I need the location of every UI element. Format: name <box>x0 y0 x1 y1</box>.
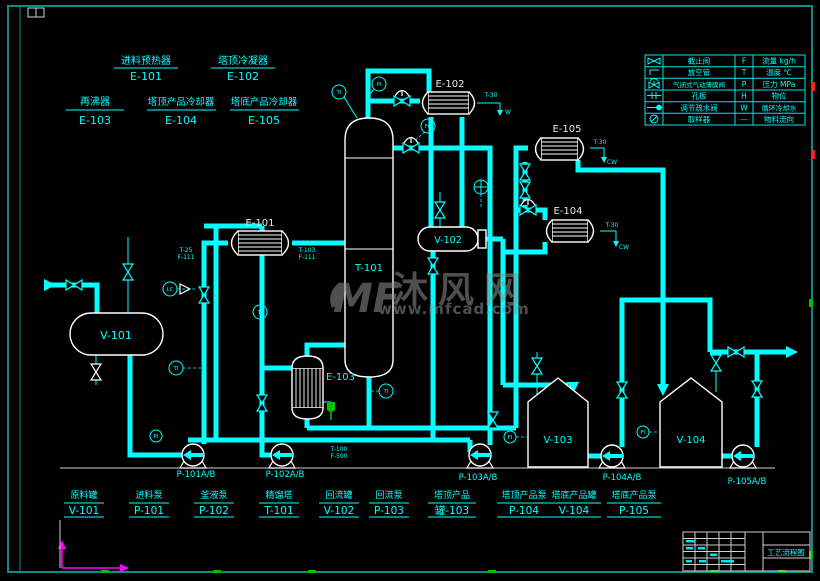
instrument-ti: TI <box>257 310 263 316</box>
bottom-legend-item: 原料罐 V-101 <box>64 489 104 517</box>
pneumatic-valve-icon <box>649 79 659 89</box>
pump-p102-tag: P-102A/B <box>266 470 305 480</box>
vent-pipe-icon <box>650 70 659 75</box>
bottom-legend-item: 进料泵 P-101 <box>129 489 169 517</box>
symbol-code: H <box>741 92 747 101</box>
reflux-valve-actuator-icon <box>404 138 418 144</box>
exchanger-e104-tag: E-104 <box>553 206 582 217</box>
feed-valve-icon <box>66 280 82 290</box>
v104-inlet-arrow-icon <box>657 384 669 396</box>
item-name: 塔底产品罐 <box>551 489 596 501</box>
cw-temp-label: T-30 <box>605 222 619 229</box>
e105-drain-valve1-icon <box>520 164 530 180</box>
stream-label: T-103 <box>298 247 316 254</box>
symbol-meaning: 温度 ℃ <box>766 67 792 77</box>
legend-tag: E-103 <box>79 114 111 127</box>
orifice-plate-icon <box>647 92 661 99</box>
legend-name: 再沸器 <box>80 95 110 108</box>
symbol-code: F <box>742 57 746 66</box>
item-name: 回流泵 <box>375 489 402 501</box>
exchanger-e102-tag: E-102 <box>435 79 464 90</box>
symbol-name: 取样器 <box>688 114 711 124</box>
stream-label: F-500 <box>330 453 347 460</box>
legend-tag: E-104 <box>165 114 197 127</box>
equipment-legend: 进料预热器 E-101 塔顶冷凝器 E-102 再沸器 E-103 塔顶产品冷却… <box>66 54 299 127</box>
tank-v104-tag: V-104 <box>677 435 706 446</box>
legend-tag: E-102 <box>227 70 259 83</box>
column-t101: T-101 <box>345 118 393 377</box>
pump-p105 <box>730 445 756 468</box>
reflux-control-valve-icon <box>403 143 419 153</box>
pump-p104 <box>599 445 625 468</box>
pump-p101-tag: P-101A/B <box>177 470 216 480</box>
v101-drain-valve-icon <box>91 364 101 380</box>
item-name: 进料泵 <box>135 489 162 501</box>
vessel-v102-tag: V-102 <box>434 235 462 246</box>
instrument-ti: TI <box>383 389 389 395</box>
instrument-pi: PI <box>154 434 159 440</box>
tank-v104: V-104 <box>660 378 722 467</box>
stream-label: F-111 <box>298 254 315 261</box>
stream-label: T-100 <box>330 446 348 453</box>
trap-icon-dot <box>657 105 662 110</box>
instrument-pi: PI <box>377 82 382 88</box>
pump-p101 <box>180 444 206 468</box>
item-tag: P-103 <box>374 505 404 517</box>
item-tag: P-102 <box>199 505 229 517</box>
bypass-control-valve-icon <box>394 96 410 106</box>
symbol-name: 截止阀 <box>688 56 711 66</box>
legend-tag: E-105 <box>248 114 280 127</box>
cw-label: W <box>505 109 511 116</box>
stream-label: T-25 <box>179 247 193 254</box>
feed-line <box>44 285 97 313</box>
e104-control-valve-icon <box>520 205 536 215</box>
export-arrow-icon <box>786 346 798 358</box>
tank-v103-tag: V-103 <box>544 435 573 446</box>
item-tag: V-104 <box>559 505 590 517</box>
vessel-v101-tag: V-101 <box>100 329 132 342</box>
valve-symbol-icon <box>648 58 660 64</box>
pump-p102 <box>269 444 295 468</box>
symbol-meaning: 循环冷却水 <box>762 103 797 112</box>
condensate-lines <box>431 117 462 227</box>
vessel-v102: V-102 <box>418 227 486 251</box>
cw-temp-label: T-30 <box>484 92 498 99</box>
cw-temp-label: T-30 <box>593 139 607 146</box>
watermark-url: www.mfcad.com <box>378 300 530 318</box>
symbol-meaning: 物位 <box>772 91 787 101</box>
bottom-legend-item: 精馏塔 T-101 <box>259 489 299 517</box>
legend-tag: E-101 <box>130 70 162 83</box>
symbol-meaning: 物料流向 <box>764 114 794 124</box>
pump-p103-tag: P-103A/B <box>459 473 498 483</box>
bottom-legend-item: 回流泵 P-103 <box>369 489 409 517</box>
v102-vent-valve-icon <box>435 202 445 218</box>
instrument-fi: FI <box>641 430 646 436</box>
steam-trap-icon <box>327 402 335 412</box>
legend-name: 塔底产品冷却器 <box>231 96 298 108</box>
p104-discharge-valve-icon <box>617 382 627 398</box>
stream-label: F-111 <box>177 254 194 261</box>
cw-label: CW <box>607 159 617 166</box>
instrument-fi: FI <box>508 435 513 441</box>
lower-header-line <box>188 440 470 452</box>
bottom-legend: 原料罐 V-101 进料泵 P-101 釜液泵 P-102 精馏塔 T-101 … <box>64 489 661 517</box>
pump-p104-tag: P-104A/B <box>603 473 642 483</box>
bottom-legend-item: 塔顶产品 罐-103 <box>428 489 476 517</box>
item-tag: P-104 <box>509 505 539 517</box>
symbol-name: 放空管 <box>688 67 711 77</box>
item-tag: V-101 <box>69 505 99 517</box>
exchanger-e103-tag: E-103 <box>326 372 355 383</box>
item-tag: 罐-103 <box>435 504 469 517</box>
v103-vent-valve-icon <box>532 358 542 374</box>
legend-name: 塔顶产品冷却器 <box>148 96 215 108</box>
symbol-legend-table: 截止阀 F 流量 kg/h 放空管 T 温度 ℃ 气闭式气动薄膜阀 P 压力 M… <box>645 55 805 125</box>
drawing-title: 工艺流程图 <box>767 547 805 557</box>
exchanger-e101-tag: E-101 <box>245 218 274 229</box>
bottom-legend-item: 回流罐 V-102 <box>319 489 359 517</box>
p101-discharge-valve-icon <box>199 287 209 303</box>
exchanger-e105: E-105 <box>536 124 584 160</box>
sample-point-icon-line <box>651 116 657 122</box>
bottom-legend-item: 釜液泵 P-102 <box>194 489 234 517</box>
cad-canvas: 进料预热器 E-101 塔顶冷凝器 E-102 再沸器 E-103 塔顶产品冷却… <box>0 0 820 581</box>
watermark: MF 沐风网 www.mfcad.com <box>330 270 530 322</box>
bypass-valve-actuator-icon <box>395 91 409 97</box>
instrument-lc: LC <box>167 287 174 293</box>
exchanger-e104: E-104 <box>547 206 594 242</box>
v104-vent-valve-icon <box>711 355 721 371</box>
item-name: 塔底产品泵 <box>611 489 656 501</box>
title-block: 工艺流程图 <box>683 532 810 571</box>
item-name: 塔顶产品泵 <box>501 489 546 501</box>
e105-drain-valve2-icon <box>520 182 530 198</box>
symbol-meaning: 流量 kg/h <box>762 56 796 66</box>
bottoms-header-lines <box>204 226 271 455</box>
p105-discharge-valve-icon <box>752 381 762 397</box>
item-name: 精馏塔 <box>265 489 292 501</box>
e104-outlet-line <box>503 242 545 252</box>
symbol-code: T <box>741 68 747 77</box>
valves <box>66 91 762 429</box>
instrument-fc: FC <box>424 124 431 130</box>
column-bottoms-lines <box>307 377 516 428</box>
exchanger-e105-tag: E-105 <box>552 124 581 135</box>
column-t101-tag: T-101 <box>354 263 383 274</box>
legend-name: 进料预热器 <box>121 54 171 67</box>
bottom-legend-item: 塔顶产品泵 P-104 <box>497 489 551 517</box>
symbol-name: 调节疏水阀 <box>680 102 718 112</box>
item-name: 回流罐 <box>325 489 352 501</box>
item-tag: T-101 <box>263 505 293 517</box>
bottom-legend-item: 塔底产品泵 P-105 <box>607 489 661 517</box>
instrument-ti: TI <box>336 90 342 96</box>
export-valve-icon <box>728 347 744 357</box>
item-tag: P-105 <box>619 505 649 517</box>
cw-label: CW <box>619 244 629 251</box>
symbol-name: 气闭式气动薄膜阀 <box>673 80 725 89</box>
ucs-icon <box>58 540 129 572</box>
instruments: LC TI TI TI PI FC TI FI FI PI <box>150 77 660 443</box>
pump-p105-tag: P-105A/B <box>728 477 767 487</box>
legend-name: 塔顶冷凝器 <box>218 54 268 67</box>
item-name: 塔顶产品 <box>434 489 470 501</box>
item-name: 原料罐 <box>70 489 97 501</box>
bottom-legend-item: 塔底产品罐 V-104 <box>547 489 601 517</box>
instrument-ti: TI <box>173 366 179 372</box>
item-name: 釜液泵 <box>200 489 227 501</box>
item-tag: P-101 <box>134 505 164 517</box>
symbol-meaning: 压力 MPa <box>763 79 796 89</box>
v101-vent-valve-icon <box>123 264 133 280</box>
item-tag: V-102 <box>324 505 354 517</box>
symbol-code: W <box>740 103 748 112</box>
steam-valve-icon <box>257 395 267 411</box>
symbol-code: — <box>740 115 748 124</box>
process-flow-diagram: 进料预热器 E-101 塔顶冷凝器 E-102 再沸器 E-103 塔顶产品冷却… <box>0 0 820 581</box>
symbol-code: P <box>742 80 747 89</box>
symbol-name: 孔板 <box>692 91 707 101</box>
feed-arrow-icon <box>44 279 56 291</box>
